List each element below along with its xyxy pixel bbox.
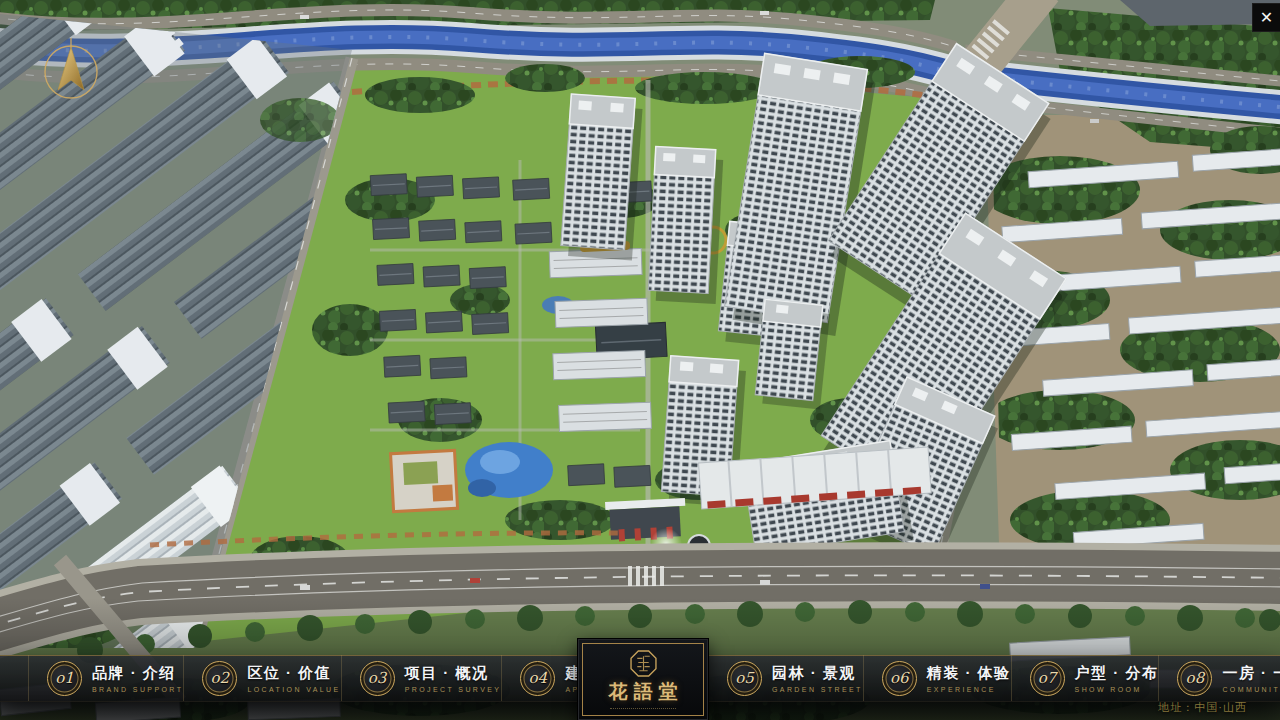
nav-caption: SHOW ROOM	[1075, 686, 1159, 693]
nav-group-right: o5 园林 · 景观 GARDEN STREET o6 精装 · 体验 EXPE…	[708, 655, 1248, 701]
presentation-window: ✕ o1 品牌 · 介绍 BRAND SUPPORT o2 区位 · 价值 LO…	[0, 0, 1280, 720]
nav-label: 项目 · 概况	[405, 664, 502, 683]
nav-badge-8: o8	[1177, 661, 1212, 696]
nav-caption: PROJECT SURVEY	[405, 686, 502, 693]
nav-item-project[interactable]: o3 项目 · 概况 PROJECT SURVEY	[341, 655, 502, 701]
nav-caption: EXPERIENCE	[927, 686, 1011, 693]
nav-caption: BRAND SUPPORT	[92, 686, 183, 693]
nav-item-garden[interactable]: o5 园林 · 景观 GARDEN STREET	[708, 655, 863, 701]
nav-item-brand[interactable]: o1 品牌 · 介绍 BRAND SUPPORT	[28, 655, 183, 701]
close-button[interactable]: ✕	[1252, 3, 1280, 32]
map-render[interactable]	[0, 0, 1280, 720]
nav-badge-7: o7	[1030, 661, 1065, 696]
nav-label: 园林 · 景观	[772, 664, 863, 683]
nav-caption: LOCATION VALUE	[247, 686, 340, 693]
nav-label: 精装 · 体验	[927, 664, 1011, 683]
nav-badge-6: o6	[882, 661, 917, 696]
project-logo[interactable]: 花語堂	[578, 639, 708, 720]
nav-badge-4: o4	[520, 661, 555, 696]
project-address: 地址：中国·山西	[1158, 700, 1247, 715]
nav-item-view[interactable]: o8 一房 · 一景 COMMUNITY	[1158, 655, 1280, 701]
nav-item-floorplan[interactable]: o7 户型 · 分布 SHOW ROOM	[1011, 655, 1159, 701]
nav-label: 户型 · 分布	[1075, 664, 1159, 683]
nav-badge-1: o1	[47, 661, 82, 696]
nav-badge-2: o2	[202, 661, 237, 696]
nav-badge-3: o3	[360, 661, 395, 696]
seal-emblem-icon	[630, 650, 657, 677]
logo-title: 花語堂	[603, 679, 684, 705]
nav-item-location[interactable]: o2 区位 · 价值 LOCATION VALUE	[183, 655, 340, 701]
nav-group-left: o1 品牌 · 介绍 BRAND SUPPORT o2 区位 · 价值 LOCA…	[28, 655, 568, 701]
logo-subtitle-rule	[610, 708, 676, 709]
nav-label: 区位 · 价值	[247, 664, 340, 683]
nav-caption: COMMUNITY	[1222, 686, 1280, 693]
nav-item-interior[interactable]: o6 精装 · 体验 EXPERIENCE	[863, 655, 1011, 701]
nav-caption: GARDEN STREET	[772, 686, 863, 693]
nav-label: 一房 · 一景	[1222, 664, 1280, 683]
nav-label: 品牌 · 介绍	[92, 664, 183, 683]
nav-badge-5: o5	[727, 661, 762, 696]
